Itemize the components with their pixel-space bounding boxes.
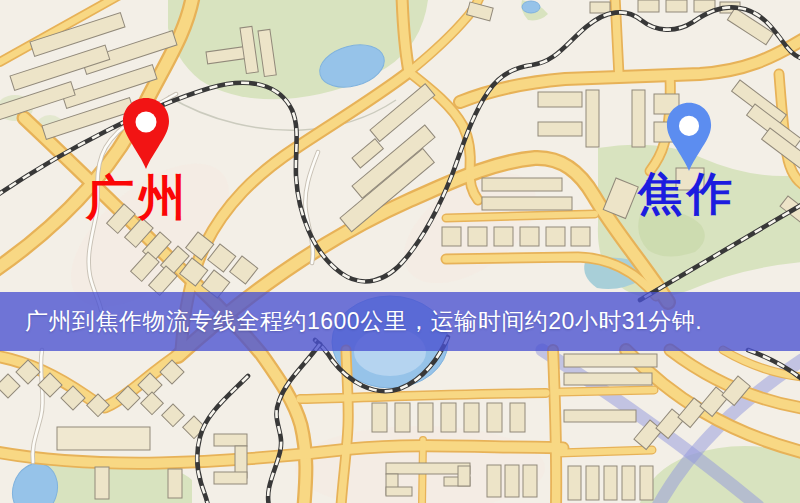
destination-city-label: 焦作	[638, 172, 736, 217]
map-screenshot: 广州 焦作 广州到焦作物流专线全程约1600公里，运输时间约20小时31分钟.	[0, 0, 800, 503]
map-image	[0, 0, 800, 503]
route-info-banner: 广州到焦作物流专线全程约1600公里，运输时间约20小时31分钟.	[0, 292, 800, 351]
route-info-text: 广州到焦作物流专线全程约1600公里，运输时间约20小时31分钟.	[25, 306, 702, 337]
origin-city-label: 广州	[86, 174, 190, 222]
